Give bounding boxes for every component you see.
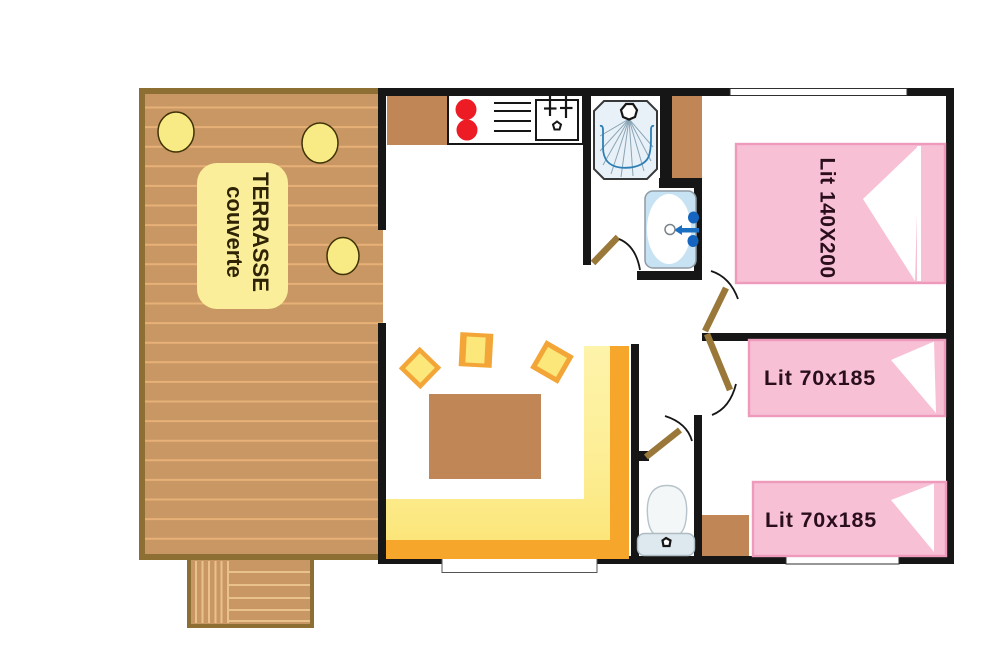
svg-text:Lit 70x185: Lit 70x185 <box>764 366 876 390</box>
svg-text:Lit 140X200: Lit 140X200 <box>815 157 838 278</box>
svg-text:TERRASSEcouverte: TERRASSEcouverte <box>222 172 273 292</box>
svg-text:Lit 70x185: Lit 70x185 <box>765 508 877 532</box>
